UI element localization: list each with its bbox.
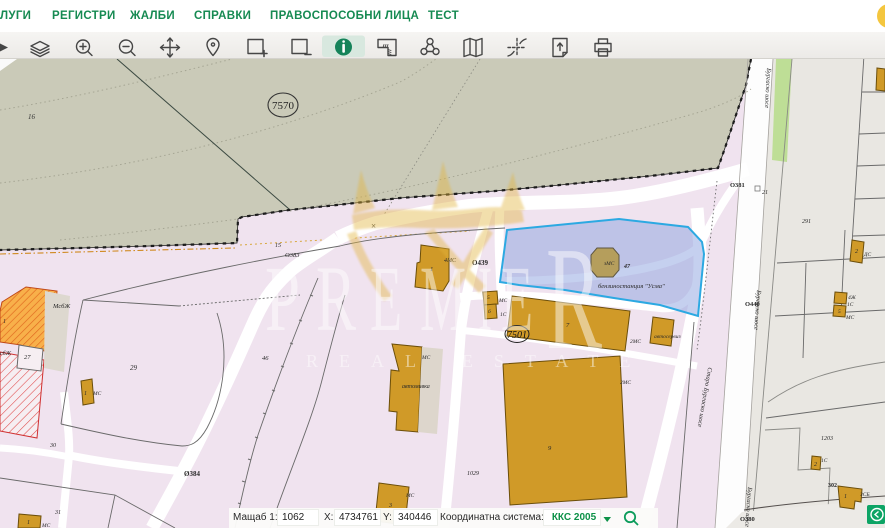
- svg-text:1: 1: [844, 494, 847, 500]
- svg-text:R: R: [316, 248, 356, 351]
- svg-text:О381: О381: [730, 182, 745, 189]
- svg-text:30: 30: [49, 443, 56, 449]
- svg-text:16: 16: [28, 113, 36, 121]
- svg-text:МС: МС: [92, 391, 102, 397]
- svg-text:M: M: [420, 248, 466, 351]
- svg-text:E: E: [370, 248, 402, 351]
- svg-text:1203: 1203: [821, 436, 833, 442]
- svg-text:7570: 7570: [272, 100, 295, 112]
- svg-text:302: 302: [828, 483, 837, 489]
- svg-text:1: 1: [3, 319, 6, 325]
- svg-text:МсбЖ: МсбЖ: [52, 303, 71, 310]
- svg-text:МС: МС: [845, 315, 855, 321]
- svg-text:291: 291: [802, 219, 811, 225]
- svg-text:1С: 1С: [821, 458, 828, 464]
- svg-text:31: 31: [54, 510, 61, 516]
- svg-text:I: I: [478, 248, 492, 351]
- svg-text:1С: 1С: [847, 302, 854, 308]
- svg-text:1029: 1029: [467, 471, 479, 477]
- svg-text:21: 21: [762, 190, 768, 196]
- svg-text:E: E: [501, 248, 533, 351]
- svg-text:P: P: [265, 248, 300, 351]
- svg-text:ЗСБ: ЗСБ: [860, 492, 870, 498]
- svg-text:2МС: 2МС: [620, 380, 631, 386]
- svg-text:5: 5: [838, 309, 841, 315]
- svg-text:2: 2: [814, 462, 817, 468]
- svg-text:МС: МС: [41, 523, 51, 528]
- svg-text:бензиностанция "Усма": бензиностанция "Усма": [598, 283, 665, 290]
- svg-text:автомивка: автомивка: [402, 384, 430, 390]
- svg-text:29: 29: [130, 364, 138, 372]
- svg-text:REAL ESTATE: REAL ESTATE: [306, 351, 651, 371]
- svg-text:ДС: ДС: [863, 252, 871, 258]
- svg-text:сбЖ: сбЖ: [0, 350, 12, 357]
- svg-text:46: 46: [262, 355, 269, 362]
- svg-text:2: 2: [855, 249, 858, 255]
- svg-text:МС: МС: [405, 493, 415, 499]
- svg-text:27: 27: [24, 354, 31, 361]
- svg-text:зМС: зМС: [603, 261, 615, 267]
- svg-text:1: 1: [27, 520, 30, 526]
- svg-text:автосервиз: автосервиз: [654, 334, 681, 340]
- svg-text:47: 47: [623, 264, 631, 270]
- svg-text:4Ж: 4Ж: [848, 294, 857, 301]
- svg-text:2МС: 2МС: [630, 339, 641, 345]
- svg-text:Ø384: Ø384: [184, 470, 200, 478]
- svg-text:1: 1: [84, 391, 87, 397]
